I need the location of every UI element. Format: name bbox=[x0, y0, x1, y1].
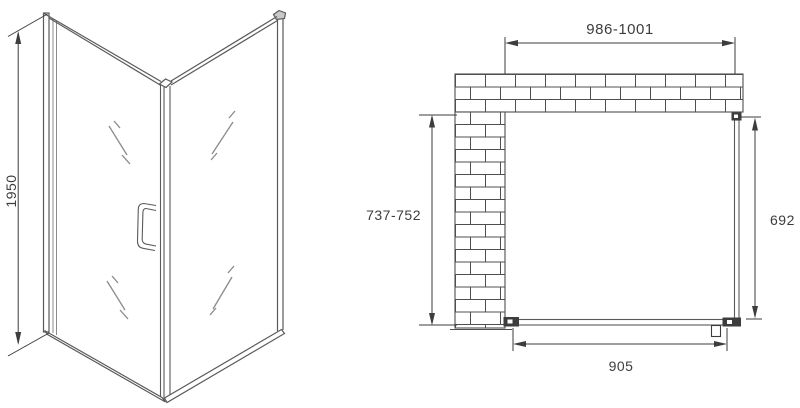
arrow-up-icon bbox=[429, 115, 435, 128]
arrow-up-icon bbox=[752, 118, 758, 131]
depth-dimension-label: 737-752 bbox=[366, 207, 421, 223]
enclosure-3d-view bbox=[44, 11, 286, 403]
shower-enclosure-drawing: 1950 986-1001 737-752 bbox=[0, 0, 800, 408]
left-glass-edge-lines bbox=[53, 19, 57, 335]
arrow-left-icon bbox=[505, 40, 518, 46]
arrow-left-icon bbox=[513, 341, 526, 347]
plan-view bbox=[450, 74, 743, 337]
top-brick-wall bbox=[455, 74, 743, 112]
door-dimension-label: 905 bbox=[609, 358, 634, 374]
height-dimension-label: 1950 bbox=[3, 174, 19, 207]
door-bottom-rail bbox=[45, 331, 166, 403]
center-corner-post bbox=[161, 83, 171, 401]
side-panel-top-rail bbox=[171, 17, 278, 86]
door-top-rail bbox=[44, 14, 161, 86]
door-handle bbox=[138, 204, 157, 251]
arrow-down-icon bbox=[15, 332, 21, 345]
right-frame-post bbox=[278, 16, 284, 331]
arrow-right-icon bbox=[722, 40, 735, 46]
width-dimension: 986-1001 bbox=[505, 21, 735, 74]
glass-dimension-label: 692 bbox=[770, 212, 795, 228]
door-dimension: 905 bbox=[513, 328, 727, 374]
door-panel-plan bbox=[512, 320, 737, 326]
arrow-down-icon bbox=[752, 306, 758, 319]
door-handle-plan bbox=[712, 326, 721, 337]
depth-dimension: 737-752 bbox=[366, 115, 457, 326]
wall-bracket-notch bbox=[734, 115, 738, 119]
glass-dimension: 692 bbox=[741, 117, 795, 319]
door-corner-notch bbox=[727, 320, 732, 324]
arrow-up-icon bbox=[15, 31, 21, 44]
arrow-right-icon bbox=[714, 341, 727, 347]
technical-drawing-canvas: 1950 986-1001 737-752 bbox=[0, 0, 800, 408]
side-panel-bottom-rail bbox=[165, 330, 285, 403]
glass-reflection-marks bbox=[107, 111, 235, 319]
width-dimension-label: 986-1001 bbox=[586, 21, 653, 38]
arrow-down-icon bbox=[429, 313, 435, 326]
height-dimension: 1950 bbox=[3, 14, 49, 356]
left-frame-post bbox=[44, 13, 50, 332]
side-glass-panel-plan bbox=[735, 120, 740, 322]
door-extension-lines bbox=[513, 328, 727, 351]
depth-extension-ticks bbox=[419, 115, 457, 325]
door-hinge-left-notch bbox=[508, 320, 513, 324]
left-brick-wall bbox=[455, 112, 505, 328]
glass-extension-ticks bbox=[741, 117, 762, 319]
